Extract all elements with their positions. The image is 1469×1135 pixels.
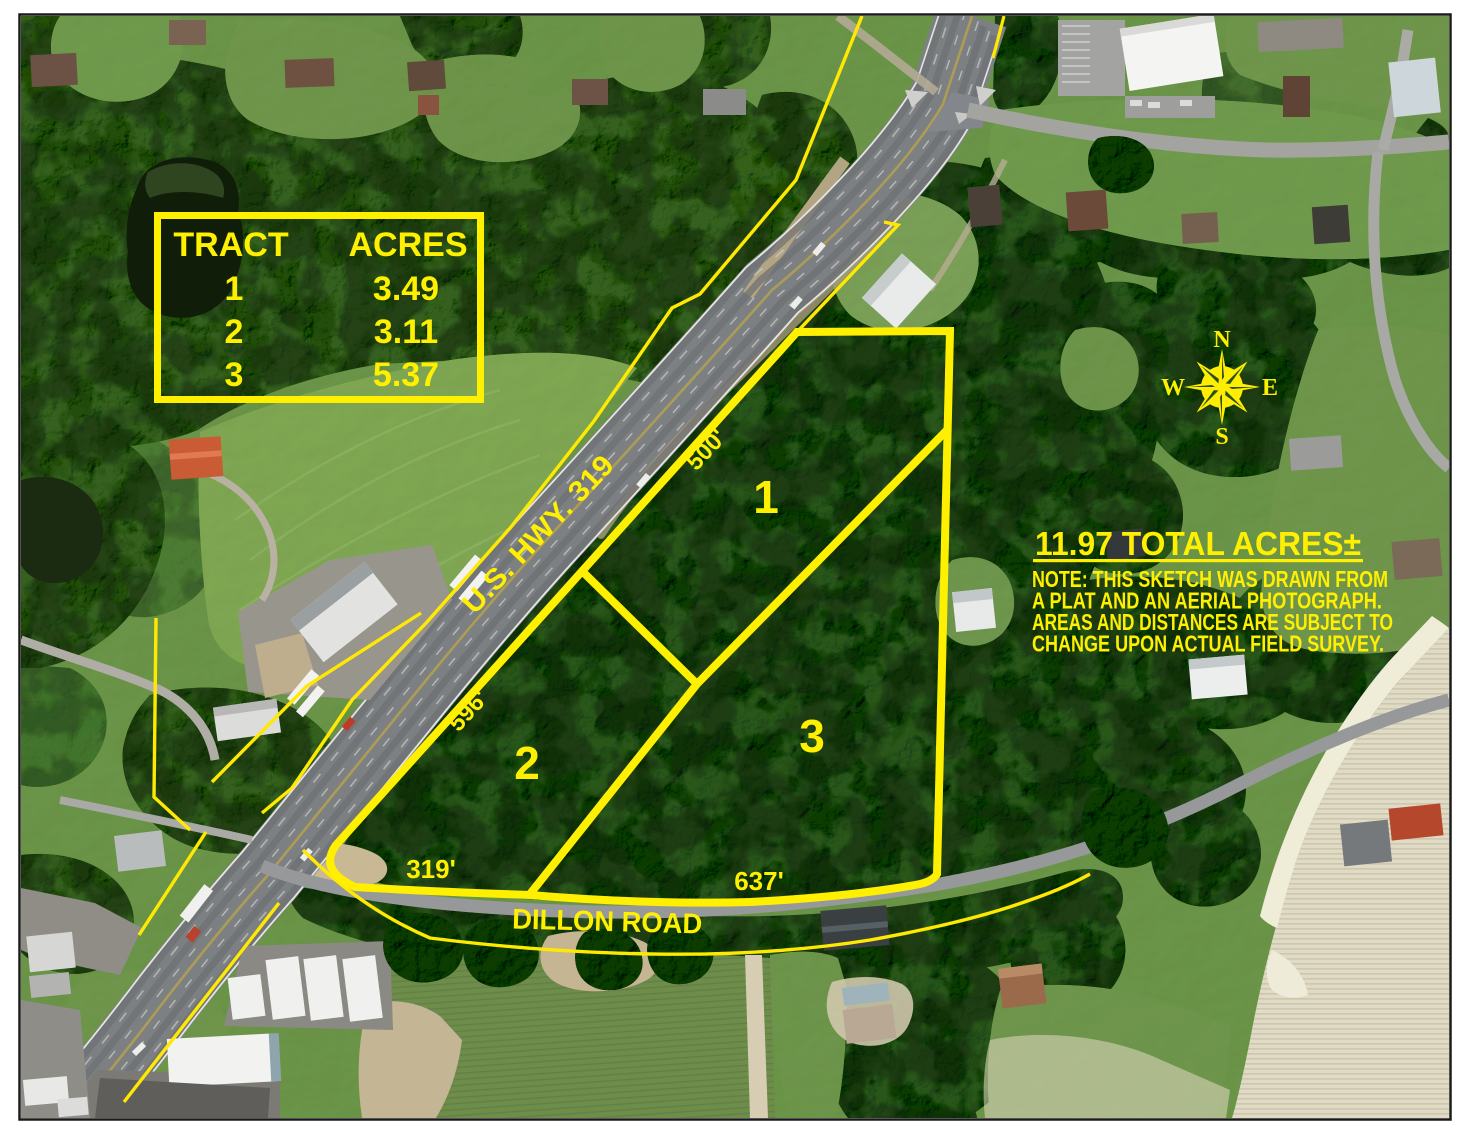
svg-text:637': 637' <box>734 866 784 896</box>
svg-text:3: 3 <box>799 710 825 762</box>
svg-text:3: 3 <box>225 356 244 394</box>
svg-text:1: 1 <box>753 471 779 523</box>
svg-text:ACRES: ACRES <box>348 226 467 264</box>
svg-text:3.11: 3.11 <box>374 313 438 351</box>
svg-text:E: E <box>1262 375 1278 401</box>
svg-text:TRACT: TRACT <box>173 226 288 264</box>
svg-text:11.97 TOTAL ACRES±: 11.97 TOTAL ACRES± <box>1035 525 1361 562</box>
svg-text:DILLON ROAD: DILLON ROAD <box>512 904 703 941</box>
svg-text:5.37: 5.37 <box>373 356 439 394</box>
svg-text:3.49: 3.49 <box>373 270 439 308</box>
svg-text:S: S <box>1215 424 1228 450</box>
svg-text:N: N <box>1213 327 1231 353</box>
svg-text:W: W <box>1161 375 1185 401</box>
svg-text:CHANGE UPON ACTUAL FIELD SURVE: CHANGE UPON ACTUAL FIELD SURVEY. <box>1032 631 1384 657</box>
svg-text:1: 1 <box>225 270 244 308</box>
svg-text:2: 2 <box>225 313 244 351</box>
svg-text:319': 319' <box>406 854 456 884</box>
svg-text:2: 2 <box>514 737 540 789</box>
